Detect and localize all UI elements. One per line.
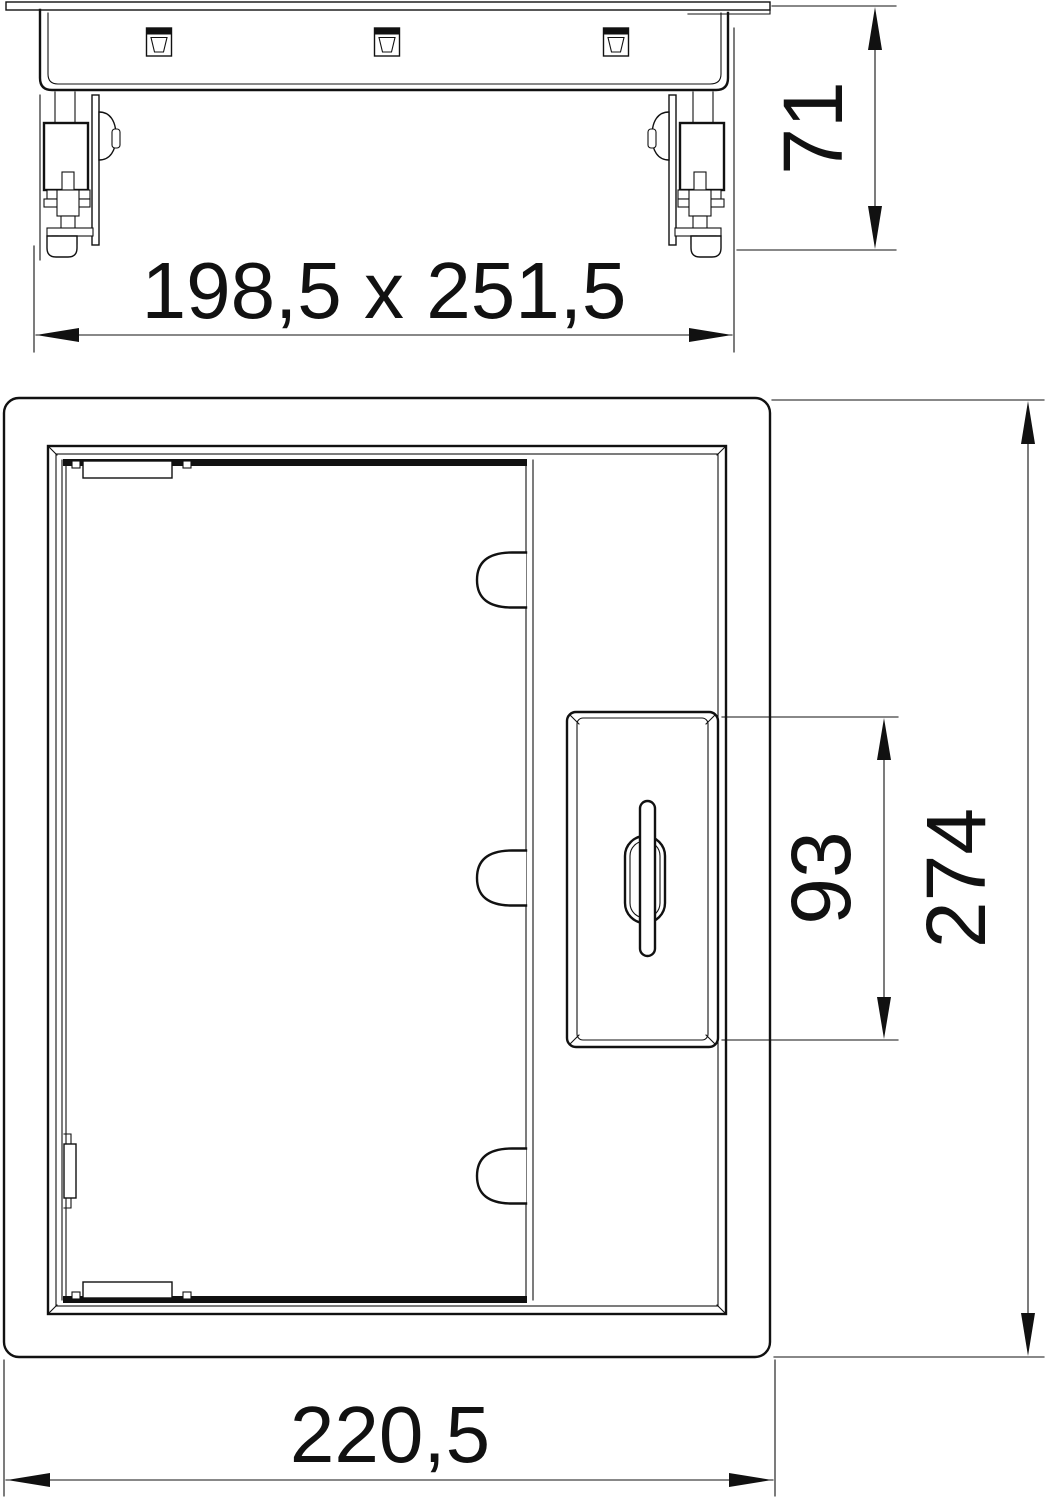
lid-notch (183, 461, 191, 468)
retaining-clip (604, 28, 629, 56)
dimension-220-5: 220,5 (4, 1360, 775, 1496)
lid-tab-top (83, 461, 172, 478)
dimension-label-93: 93 (774, 831, 868, 924)
arrowhead-up (1021, 401, 1035, 444)
dimension-cutout: 198,5 x 251,5 (34, 28, 734, 352)
leveling-leg-right (648, 92, 724, 257)
cable-grommet (477, 1149, 526, 1204)
retaining-clip (147, 28, 172, 56)
arrowhead-down (1021, 1313, 1035, 1356)
cable-grommet (477, 553, 526, 608)
drawing-canvas: 71 198,5 x 251,5 (0, 0, 1048, 1500)
lid-notch (183, 1292, 191, 1299)
arrowhead-down (868, 206, 882, 249)
lid-notch (72, 1292, 80, 1299)
arrowhead-up (868, 7, 882, 50)
lid-notch (72, 461, 80, 468)
dimension-71: 71 (737, 6, 896, 250)
dimension-label-220-5: 220,5 (290, 1390, 490, 1479)
arrowhead-right (729, 1473, 772, 1487)
dimension-label-71: 71 (766, 81, 860, 174)
leveling-leg-left (44, 92, 120, 257)
arrowhead-left (36, 328, 79, 342)
lid-tab-bottom (83, 1282, 172, 1298)
plan-view: 93 274 220,5 (4, 398, 1044, 1496)
cable-grommet (477, 851, 526, 906)
arrowhead-right (689, 328, 732, 342)
side-view-flange (6, 2, 770, 10)
dimension-label-274: 274 (909, 808, 1003, 948)
handle-slot (640, 801, 655, 956)
lid-latch (64, 1144, 76, 1198)
retaining-clip (375, 28, 400, 56)
arrowhead-left (7, 1473, 50, 1487)
technical-drawing: 71 198,5 x 251,5 (0, 0, 1048, 1500)
side-view: 71 198,5 x 251,5 (6, 2, 896, 352)
dimension-label-cutout: 198,5 x 251,5 (142, 246, 627, 335)
blind-plate (567, 712, 718, 1047)
arrowhead-down (877, 997, 891, 1039)
arrowhead-up (877, 718, 891, 760)
